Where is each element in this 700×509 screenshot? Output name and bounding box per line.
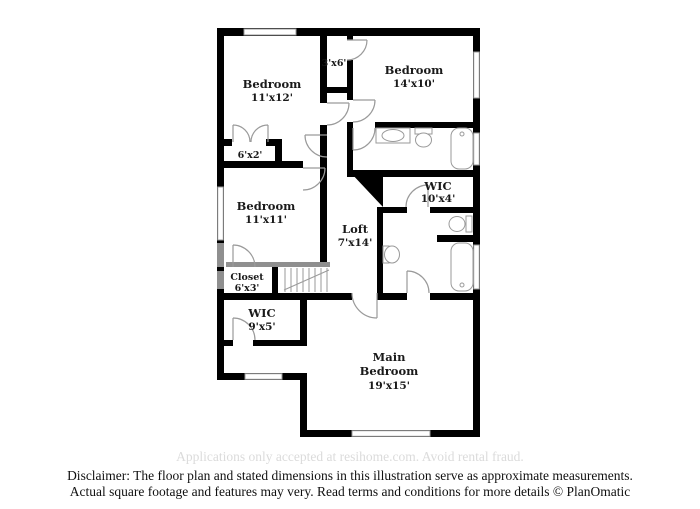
wall-step [300,373,307,437]
room-label-main-bedroom-2: Bedroom [360,364,419,378]
room-dims-loft: 7'x14' [338,237,373,249]
room-label-bedroom-11x12: Bedroom [243,77,302,91]
toilet-icon [449,217,465,232]
door-arc [352,293,377,318]
room-dims-closet-6x2: 6'x2' [238,150,263,161]
disclaimer-line-2: Actual square footage and features may v… [0,484,700,500]
door-arc [347,40,367,60]
disclaimer-line-1: Disclaimer: The floor plan and stated di… [0,468,700,484]
room-dims-closet-6x3: 6'x3' [235,283,260,294]
window-bottom-left [245,374,282,380]
room-label-bedroom-11x11: Bedroom [237,199,296,213]
window-top [244,29,296,35]
toilet-tank-icon [466,216,472,232]
room-label-wic-9x5: WIC [247,306,275,320]
room-label-bedroom-14x10: Bedroom [385,63,444,77]
room-dims-wic-9x5: 9'x5' [248,321,275,333]
sink-icon [385,246,400,263]
toilet-icon [416,133,432,147]
room-label-loft: Loft [342,222,369,236]
room-dims-closet-3x6: 3'x6' [322,58,347,69]
window-bottom-main [352,431,430,437]
room-dims-wic-10x4: 10'x4' [421,193,456,205]
room-dims-bedroom-11x11: 11'x11' [245,214,287,226]
room-label-closet-6x3: Closet [230,272,264,283]
disclaimer-text: Disclaimer: The floor plan and stated di… [0,468,700,499]
watermark-text: Applications only accepted at resihome.c… [0,449,700,465]
window-left [218,187,224,240]
door-arc [353,128,375,150]
room-dims-bedroom-11x12: 11'x12' [251,92,293,104]
floor-plan-page: Bedroom 11'x12' 3'x6' Bedroom 14'x10' 6'… [0,0,700,509]
floor-plan-svg: Bedroom 11'x12' 3'x6' Bedroom 14'x10' 6'… [0,0,700,509]
room-label-wic-10x4: WIC [423,179,451,193]
tub-drain-icon [460,132,464,136]
room-dims-main-bedroom: 19'x15' [368,380,410,392]
door-arc [407,271,429,293]
door-arc [251,125,268,142]
window-right-bath1 [474,133,480,165]
tub-drain-icon [460,283,464,287]
sink-icon [382,130,404,142]
angled-wall [350,172,383,207]
door-arc [233,125,250,142]
door-arc [353,100,375,122]
window-right-bedroom [474,52,480,98]
room-label-main-bedroom-1: Main [373,350,407,364]
door-arc [327,103,349,125]
room-dims-bedroom-14x10: 14'x10' [393,78,435,90]
staircase [284,268,329,292]
window-right-bath2 [474,245,480,289]
